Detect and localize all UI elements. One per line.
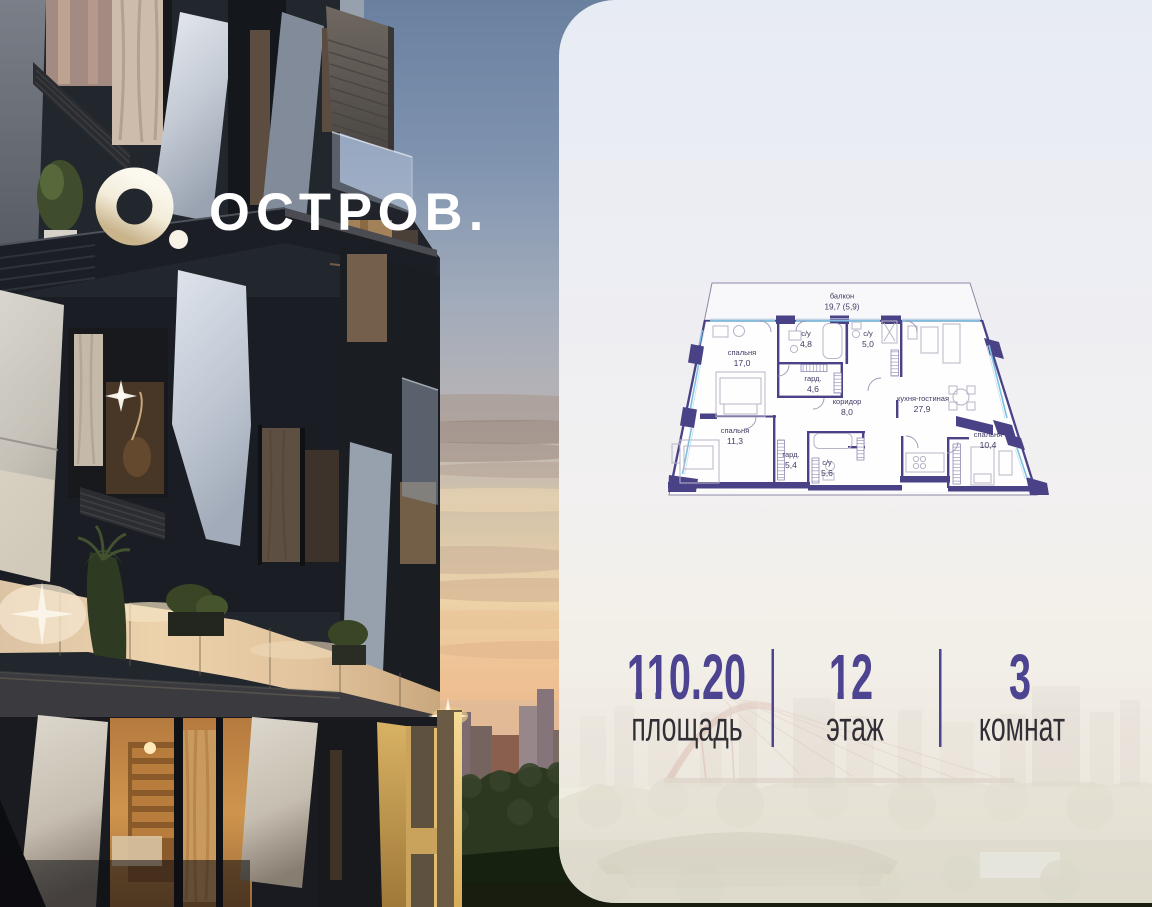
svg-text:с/у: с/у: [801, 329, 811, 338]
svg-text:кухня-гостиная: кухня-гостиная: [897, 394, 949, 403]
svg-text:4,6: 4,6: [807, 384, 819, 394]
svg-text:спальня: спальня: [728, 348, 756, 357]
svg-text:этаж: этаж: [826, 705, 884, 750]
svg-text:12: 12: [829, 643, 873, 714]
svg-text:10,4: 10,4: [980, 440, 997, 450]
svg-text:комнат: комнат: [979, 705, 1065, 750]
svg-text:с/у: с/у: [863, 329, 873, 338]
svg-text:5,6: 5,6: [821, 468, 833, 478]
svg-text:11,3: 11,3: [727, 436, 743, 446]
svg-text:балкон: балкон: [830, 292, 854, 301]
svg-text:площадь: площадь: [631, 705, 742, 750]
svg-text:8,0: 8,0: [841, 407, 853, 417]
svg-text:5,4: 5,4: [785, 460, 797, 470]
svg-text:гард.: гард.: [804, 374, 821, 383]
svg-text:19,7 (5,9): 19,7 (5,9): [824, 303, 859, 312]
svg-text:гард.: гард.: [782, 450, 799, 459]
svg-text:3: 3: [1009, 643, 1031, 714]
svg-text:спальня: спальня: [721, 426, 749, 435]
svg-text:5,0: 5,0: [862, 339, 874, 349]
svg-text:110.20: 110.20: [627, 643, 746, 714]
svg-text:коридор: коридор: [833, 397, 862, 406]
svg-text:27,9: 27,9: [914, 404, 931, 414]
svg-text:4,8: 4,8: [800, 339, 812, 349]
svg-text:с/у: с/у: [822, 458, 832, 467]
svg-text:ОСТРОВ.: ОСТРОВ.: [209, 183, 490, 242]
svg-text:17,0: 17,0: [734, 358, 751, 368]
svg-text:спальня: спальня: [974, 430, 1002, 439]
